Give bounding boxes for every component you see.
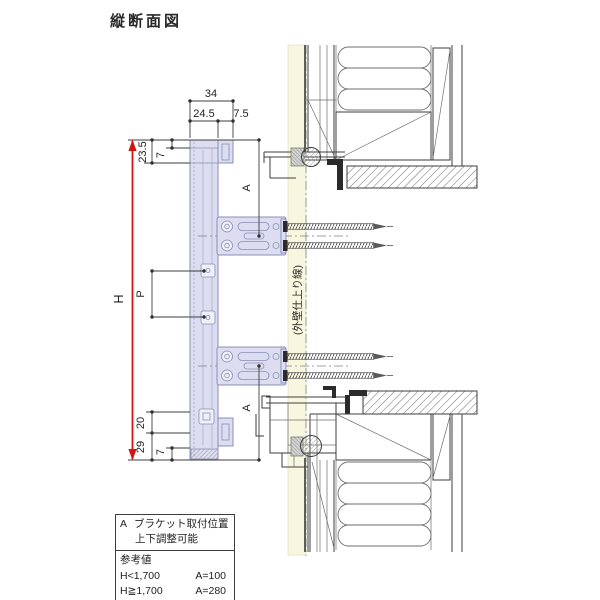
dim-bottom-hook: 7 — [155, 446, 190, 461]
note-table-body: 参考値 H<1,700 A=100 H≧1,700 A=280 — [116, 551, 234, 600]
dim-height-label: H — [112, 294, 126, 303]
insulation-batt-top — [338, 47, 431, 110]
dim-head-offset: 23.5 — [137, 138, 190, 164]
note-header-text: ブラケット取付位置 — [134, 517, 229, 532]
note-header-text2: 上下調整可能 — [120, 532, 230, 547]
drawing-page: 縦断面図 — [0, 0, 600, 600]
dimension-lines: 34 24.5 7.5 23.5 — [112, 88, 261, 462]
unit-top-hook — [218, 140, 233, 163]
dim-bottom-height-label: 29 — [135, 441, 147, 453]
dim-bottom-offset: 20 — [135, 410, 190, 434]
note-table-header: A ブラケット取付位置 上下調整可能 — [116, 515, 234, 551]
sealant-bottom-icon — [301, 436, 322, 457]
dim-body-hook-width: 24.5 7.5 — [188, 108, 248, 138]
wall-finish-line-label: (外壁仕上り線) — [291, 265, 304, 335]
dim-height-H: H — [112, 140, 137, 461]
insulation-batt-bottom — [338, 462, 431, 546]
dim-body-width-label: 24.5 — [193, 108, 214, 120]
sill-trim-board — [363, 391, 477, 414]
dim-bottom-offset-label: 20 — [135, 417, 147, 429]
sealant-top-icon — [302, 148, 321, 167]
dim-head-offset-label: 23.5 — [137, 141, 149, 162]
note-row: H≧1,700 A=280 — [120, 584, 230, 599]
dim-head-hook: 7 — [155, 138, 190, 158]
unit-bottom-cap — [191, 449, 218, 459]
dim-hook-width-label: 7.5 — [233, 108, 248, 120]
head-trim-board — [347, 166, 477, 188]
dim-bracket-top-label: A — [241, 184, 253, 192]
dim-bracket-bottom-label: A — [241, 404, 253, 412]
note-table: A ブラケット取付位置 上下調整可能 参考値 H<1,700 A=100 H≧1… — [115, 514, 235, 600]
note-row: H<1,700 A=100 — [120, 569, 230, 584]
dim-total-width-label: 34 — [205, 88, 217, 100]
dim-bottom-hook-label: 7 — [155, 449, 167, 455]
note-symbol: A — [120, 517, 127, 532]
sill-framing — [336, 414, 450, 480]
note-row-value: A=100 — [195, 569, 226, 584]
dim-head-hook-label: 7 — [155, 152, 167, 158]
dim-bottom-height: 29 — [135, 433, 190, 462]
section-drawing: (外壁仕上り線) — [0, 0, 600, 600]
note-row-condition: H≧1,700 — [120, 584, 163, 599]
note-row-value: A=280 — [195, 584, 226, 599]
screen-unit — [190, 140, 233, 460]
note-row-condition: H<1,700 — [120, 569, 160, 584]
dim-pitch-label: P — [135, 290, 147, 297]
note-ref-title: 参考値 — [120, 553, 230, 568]
